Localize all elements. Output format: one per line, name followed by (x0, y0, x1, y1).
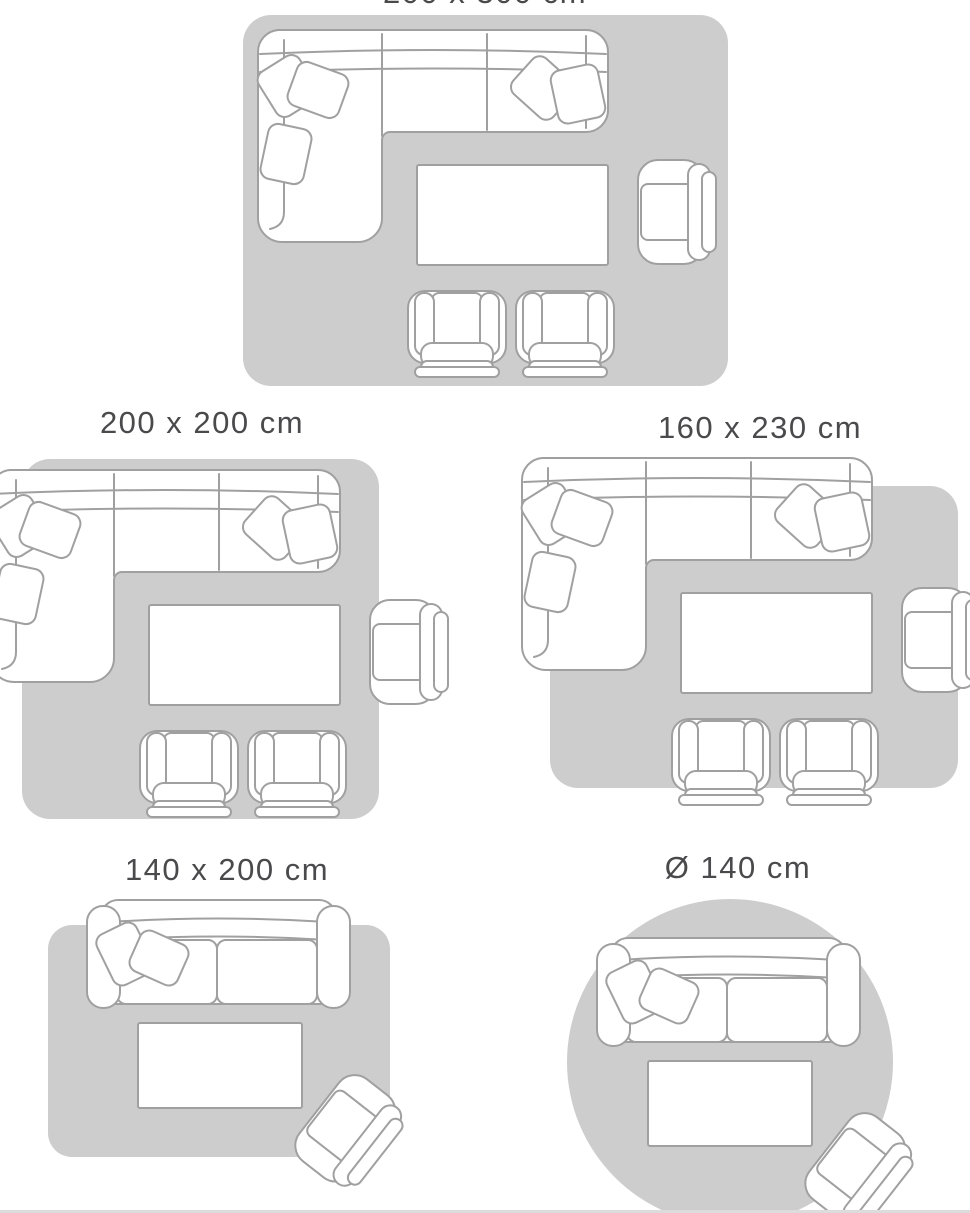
rug-scene-200x200 (0, 455, 440, 825)
diagram-round-140 (560, 890, 970, 1213)
diagram-200x200 (0, 455, 440, 825)
diagram-200x300 (240, 8, 730, 390)
diagram-160x230 (500, 455, 970, 825)
size-label-round-140: Ø 140 cm (538, 852, 938, 885)
rug-scene-round-140 (560, 890, 970, 1213)
size-label-200x200: 200 x 200 cm (2, 407, 402, 440)
diagram-140x200 (28, 890, 418, 1202)
size-label-160x230: 160 x 230 cm (560, 412, 960, 445)
size-label-140x200: 140 x 200 cm (27, 854, 427, 887)
rug-size-guide: 200 x 300 cm 200 x 200 cm 160 x 230 cm 1… (0, 0, 970, 1213)
rug-scene-140x200 (28, 890, 418, 1202)
rug-scene-200x300 (240, 8, 730, 390)
rug-scene-160x230 (500, 455, 970, 825)
